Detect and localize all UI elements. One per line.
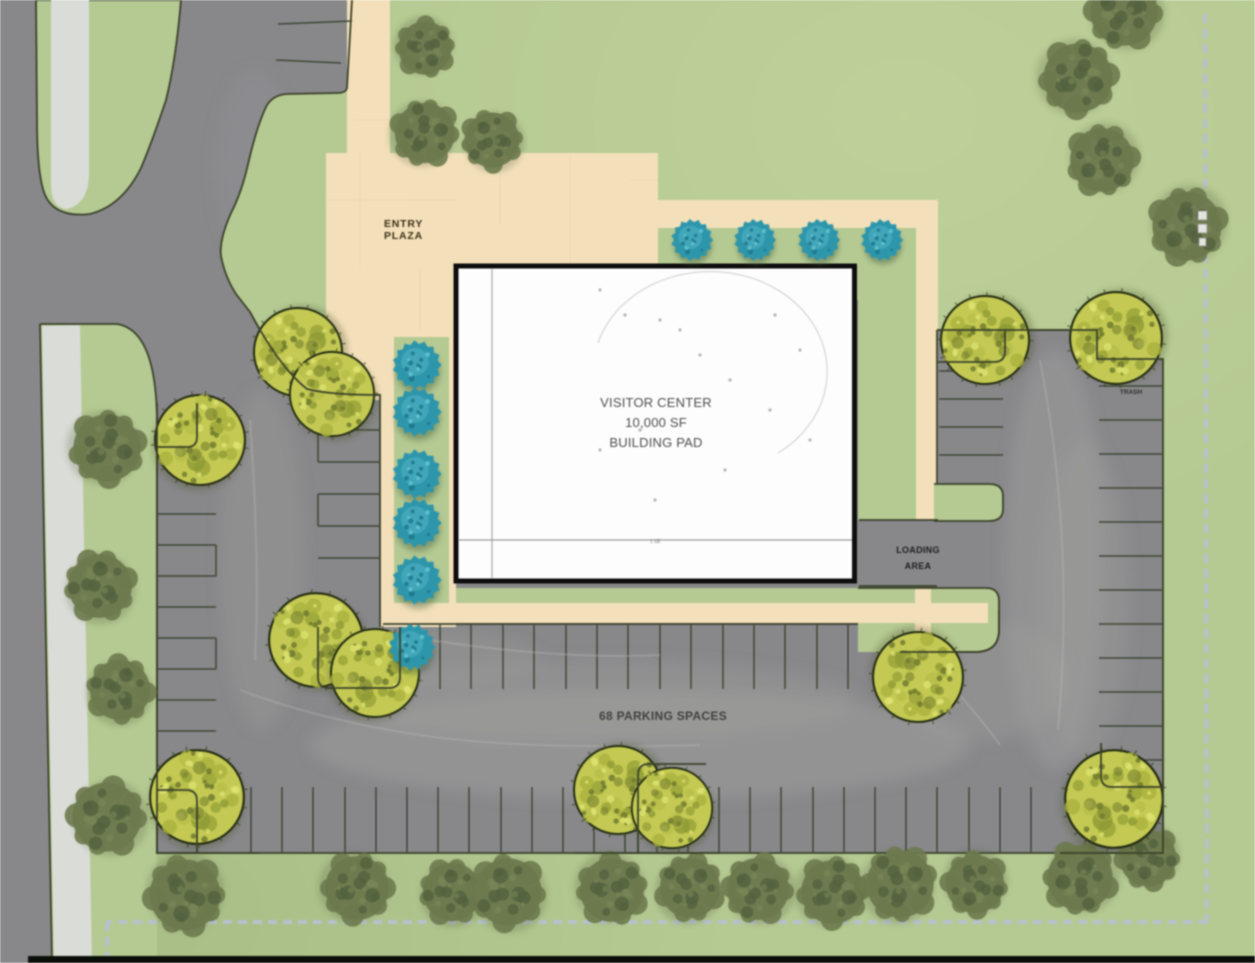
svg-text:ENTRY: ENTRY [384,218,423,230]
svg-text:AREA: AREA [905,561,932,571]
svg-text:68 PARKING SPACES: 68 PARKING SPACES [599,709,727,723]
svg-text:BUILDING PAD: BUILDING PAD [609,435,702,450]
svg-text:PLAZA: PLAZA [384,230,423,242]
svg-text:TRASH: TRASH [1120,389,1143,396]
svg-text:VISITOR CENTER: VISITOR CENTER [600,395,712,410]
svg-text:1 1E: 1 1E [650,539,661,545]
svg-text:10,000 SF: 10,000 SF [625,415,687,430]
svg-text:LOADING: LOADING [896,545,940,555]
